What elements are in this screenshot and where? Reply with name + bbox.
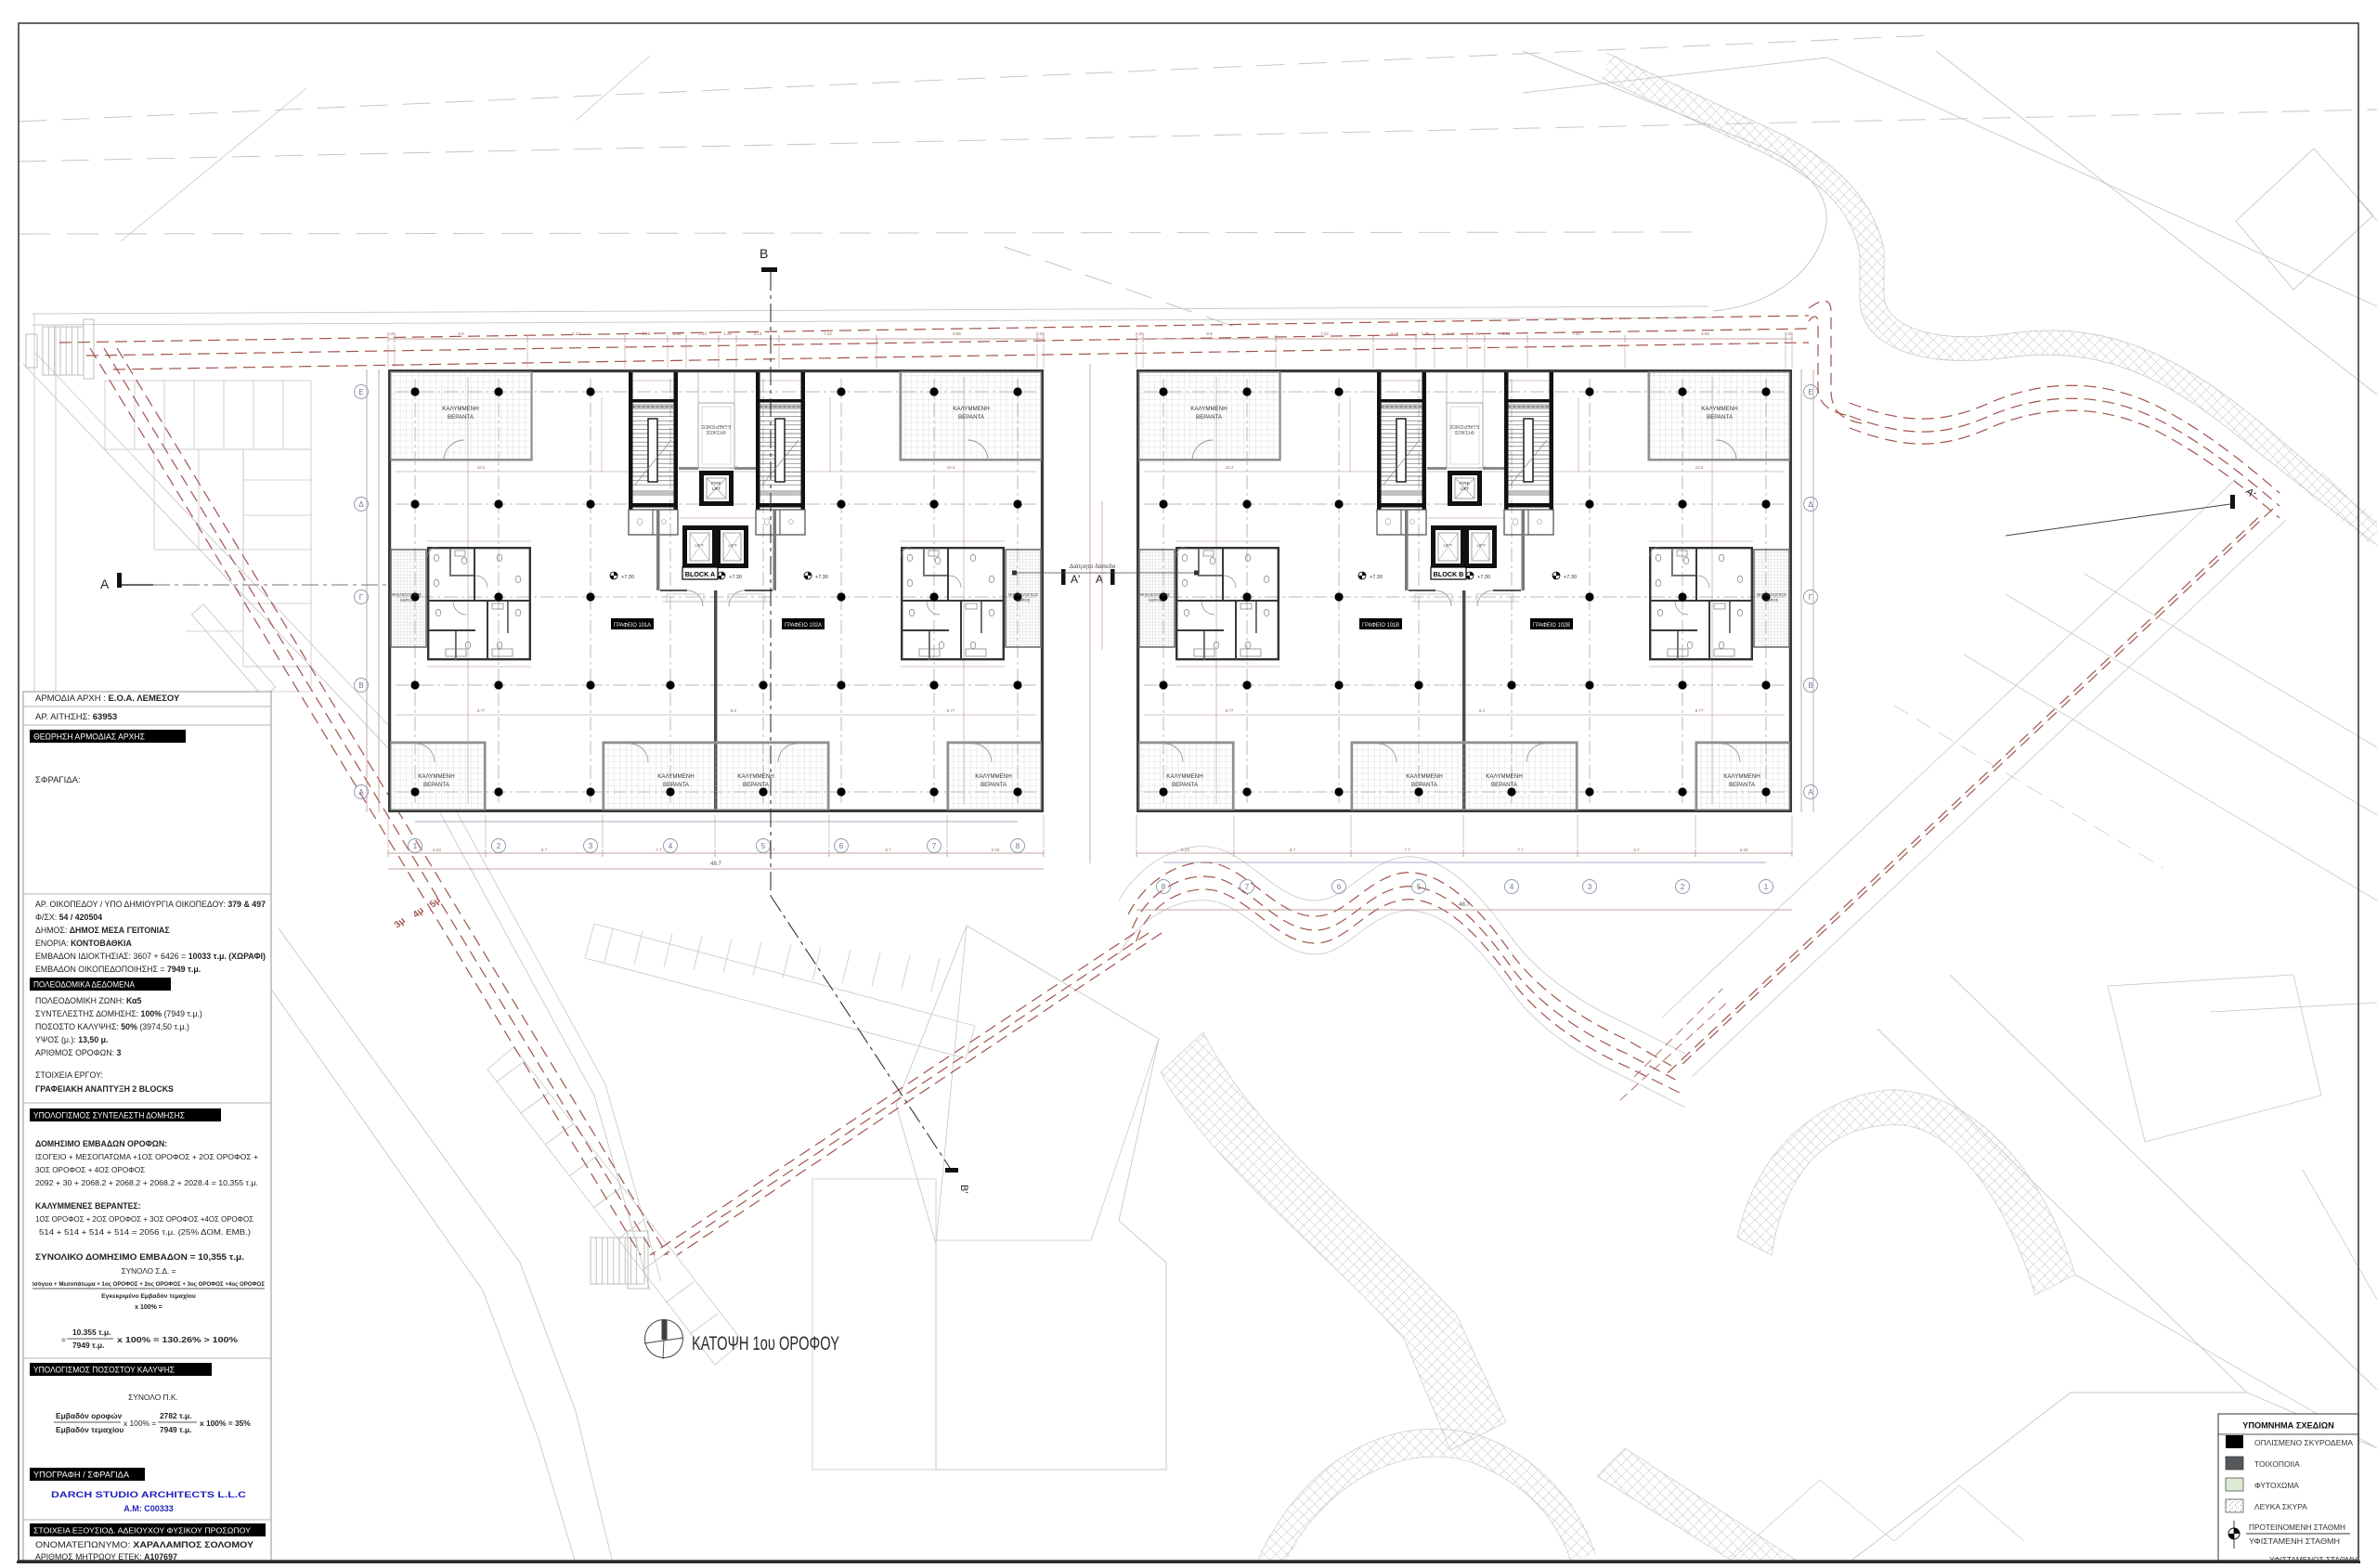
svg-text:0.25: 0.25: [387, 331, 396, 336]
svg-text:+7.30: +7.30: [621, 575, 634, 580]
svg-text:Β: Β: [358, 681, 363, 690]
svg-text:ΥΨΟΣ (μ.): 13,50 μ.: ΥΨΟΣ (μ.): 13,50 μ.: [35, 1035, 109, 1044]
svg-text:1: 1: [413, 842, 418, 850]
svg-text:ΕΝΟΡΙΑ: ΚΟΝΤΟΒΑΘΚΙΑ: ΕΝΟΡΙΑ: ΚΟΝΤΟΒΑΘΚΙΑ: [35, 939, 132, 948]
svg-text:ΣΥΝΟΛΟ Σ.Δ. =: ΣΥΝΟΛΟ Σ.Δ. =: [122, 1267, 176, 1276]
svg-text:3ΟΣ ΟΡΟΦΟΣ + 4ΟΣ ΟΡΟΦΟΣ: 3ΟΣ ΟΡΟΦΟΣ + 4ΟΣ ΟΡΟΦΟΣ: [35, 1166, 145, 1174]
svg-text:A: A: [100, 577, 110, 591]
svg-text:3.18: 3.18: [1391, 331, 1399, 336]
svg-text:Α: Α: [1808, 788, 1813, 797]
svg-text:2: 2: [1681, 883, 1685, 891]
svg-text:3: 3: [589, 842, 593, 850]
svg-text:ΒΕΡΑΝΤΑ: ΒΕΡΑΝΤΑ: [1729, 782, 1756, 788]
svg-text:LIFT: LIFT: [695, 543, 703, 548]
svg-text:x 100% = 130.26% > 100%: x 100% = 130.26% > 100%: [117, 1335, 239, 1344]
svg-text:ΜΗΧΑΝΟΛΟΓΙΚΟΣ: ΜΗΧΑΝΟΛΟΓΙΚΟΣ: [1140, 592, 1170, 597]
svg-text:Γ: Γ: [1809, 593, 1813, 602]
svg-text:Α: Α: [358, 788, 364, 797]
svg-text:ΜΗΧΑΝΟΛΟΓΙΚΟΣ: ΜΗΧΑΝΟΛΟΓΙΚΟΣ: [1757, 592, 1786, 597]
svg-text:Φ/ΣΧ: 54 / 420504: Φ/ΣΧ: 54 / 420504: [35, 913, 102, 922]
svg-text:ΥΠΟΛΟΓΙΣΜΟΣ ΠΟΣΟΣΤΟΥ ΚΑΛΥΨΗΣ: ΥΠΟΛΟΓΙΣΜΟΣ ΠΟΣΟΣΤΟΥ ΚΑΛΥΨΗΣ: [33, 1366, 175, 1375]
svg-text:ΚΑΛΥΜΜΕΝΗ: ΚΑΛΥΜΜΕΝΗ: [1701, 406, 1737, 412]
svg-text:3.18: 3.18: [643, 331, 651, 336]
svg-text:ΒΕΡΑΝΤΑ: ΒΕΡΑΝΤΑ: [1196, 414, 1223, 421]
svg-text:2782 τ.μ.: 2782 τ.μ.: [160, 1411, 191, 1420]
svg-text:514 + 514 + 514 + 514 = 2056: 514 + 514 + 514 + 514 = 2056 τ.μ. (25% Δ…: [39, 1228, 251, 1237]
svg-text:ΧΩΡΟΣ: ΧΩΡΟΣ: [1149, 598, 1163, 603]
svg-text:ΒΕΡΑΝΤΑ: ΒΕΡΑΝΤΑ: [1707, 414, 1734, 421]
svg-text:ΣΤΟΙΧΕΙΑ ΕΞΟΥΣΙΟΔ. ΑΔΕΙΟΥΧΟΥ Φ: ΣΤΟΙΧΕΙΑ ΕΞΟΥΣΙΟΔ. ΑΔΕΙΟΥΧΟΥ ΦΥΣΙΚΟΥ ΠΡΟ…: [33, 1526, 251, 1536]
svg-text:6: 6: [1337, 883, 1342, 891]
svg-text:ΣΥΝΟΛΟ Π.Κ.: ΣΥΝΟΛΟ Π.Κ.: [128, 1393, 178, 1402]
svg-text:5: 5: [761, 842, 766, 850]
svg-text:4: 4: [669, 842, 673, 850]
svg-text:ΦΥΤΟΧΩΜΑ: ΦΥΤΟΧΩΜΑ: [2254, 1481, 2299, 1490]
svg-text:ΑΡ. ΑΙΤΗΣΗΣ: 63953: ΑΡ. ΑΙΤΗΣΗΣ: 63953: [35, 712, 117, 722]
svg-text:8.7: 8.7: [1633, 848, 1640, 852]
svg-text:ΕΞΑΕΡΙΣΜΟΣ: ΕΞΑΕΡΙΣΜΟΣ: [1449, 423, 1479, 429]
svg-text:7.7: 7.7: [1404, 848, 1410, 852]
svg-text:ΓΡΑΦΕΙΟ 102A: ΓΡΑΦΕΙΟ 102A: [785, 622, 823, 628]
svg-text:6.33: 6.33: [433, 848, 441, 852]
svg-text:Δ: Δ: [358, 500, 364, 509]
svg-text:ΧΩΡΟΣ: ΧΩΡΟΣ: [400, 598, 414, 603]
svg-text:ΚΑΤΟΨΗ 1ου ΟΡΟΦΟΥ: ΚΑΤΟΨΗ 1ου ΟΡΟΦΟΥ: [692, 1332, 839, 1354]
svg-text:ΚΑΛΥΜΜΕΝΕΣ ΒΕΡΑΝΤΕΣ:: ΚΑΛΥΜΜΕΝΕΣ ΒΕΡΑΝΤΕΣ:: [35, 1201, 141, 1211]
svg-text:8: 8: [1162, 883, 1166, 891]
svg-text:6.33: 6.33: [1740, 848, 1748, 852]
svg-text:ΧΩΡΟΣ: ΧΩΡΟΣ: [1017, 598, 1031, 603]
svg-text:ΣΦΡΑΓΙΔΑ:: ΣΦΡΑΓΙΔΑ:: [35, 775, 81, 785]
svg-text:1: 1: [1764, 883, 1769, 891]
svg-text:ΜΗΧΑΝΟΛΟΓΙΚΟΣ: ΜΗΧΑΝΟΛΟΓΙΚΟΣ: [392, 592, 422, 597]
svg-text:1.35: 1.35: [1472, 331, 1480, 336]
svg-text:ΒΕΡΑΝΤΑ: ΒΕΡΑΝΤΑ: [981, 782, 1007, 788]
svg-text:ΥΠΟΜΝΗΜΑ ΣΧΕΔΙΩΝ: ΥΠΟΜΝΗΜΑ ΣΧΕΔΙΩΝ: [2242, 1421, 2334, 1431]
svg-text:LIFT: LIFT: [1443, 543, 1451, 548]
svg-text:6.33: 6.33: [1181, 848, 1189, 852]
svg-text:7.7: 7.7: [1517, 848, 1524, 852]
svg-text:ΚΑΛΥΜΜΕΝΗ: ΚΑΛΥΜΜΕΝΗ: [953, 406, 989, 412]
svg-text:4: 4: [1510, 883, 1514, 891]
svg-text:Ε: Ε: [358, 388, 363, 396]
svg-text:Εμβαδόν τεμαχίου: Εμβαδόν τεμαχίου: [56, 1425, 123, 1434]
svg-text:ΥΠΟΓΡΑΦΗ / ΣΦΡΑΓΙΔΑ: ΥΠΟΓΡΑΦΗ / ΣΦΡΑΓΙΔΑ: [33, 1471, 129, 1480]
svg-text:1ΟΣ ΟΡΟΦΟΣ + 2ΟΣ ΟΡΟΦΟΣ + 3ΟΣ: 1ΟΣ ΟΡΟΦΟΣ + 2ΟΣ ΟΡΟΦΟΣ + 3ΟΣ ΟΡΟΦΟΣ +4Ο…: [35, 1215, 253, 1224]
svg-text:1.35: 1.35: [673, 331, 682, 336]
svg-text:48.7: 48.7: [710, 862, 721, 867]
svg-text:48.7: 48.7: [1459, 902, 1470, 908]
svg-text:ΒΕΡΑΝΤΑ: ΒΕΡΑΝΤΑ: [663, 782, 690, 788]
svg-text:Δ: Δ: [1808, 500, 1813, 509]
svg-text:ΓΡΑΦΕΙΟ 101B: ΓΡΑΦΕΙΟ 101B: [1362, 622, 1399, 628]
svg-text:B: B: [760, 246, 768, 261]
svg-text:ΚΑΛΥΜΜΕΝΗ: ΚΑΛΥΜΜΕΝΗ: [1723, 773, 1760, 780]
svg-text:ΘΕΩΡΗΣΗ ΑΡΜΟΔΙΑΣ ΑΡΧΗΣ: ΘΕΩΡΗΣΗ ΑΡΜΟΔΙΑΣ ΑΡΧΗΣ: [33, 732, 146, 742]
svg-text:ΥΦΙΣΤΑΜΕΝΗ ΣΤΑΘΜΗ: ΥΦΙΣΤΑΜΕΝΗ ΣΤΑΘΜΗ: [2249, 1536, 2340, 1546]
svg-text:+7.30: +7.30: [1370, 575, 1383, 580]
svg-text:ΣΤΟΙΧΕΙΑ ΕΡΓΟΥ:: ΣΤΟΙΧΕΙΑ ΕΡΓΟΥ:: [35, 1070, 103, 1080]
svg-text:ΠΟΛΕΟΔΟΜΙΚΑ ΔΕΔΟΜΕΝΑ: ΠΟΛΕΟΔΟΜΙΚΑ ΔΕΔΟΜΕΝΑ: [33, 980, 135, 990]
svg-text:Εμβαδόν οροφών: Εμβαδόν οροφών: [56, 1411, 123, 1420]
svg-text:ΓΡΑΦΕΙΑΚΗ ΑΝΑΠΤΥΞΗ 2 BLOCKS: ΓΡΑΦΕΙΑΚΗ ΑΝΑΠΤΥΞΗ 2 BLOCKS: [35, 1084, 174, 1094]
svg-text:B': B': [958, 1185, 969, 1193]
svg-text:ΚΑΛΥΜΜΕΝΗ: ΚΑΛΥΜΜΕΝΗ: [442, 406, 478, 412]
svg-text:ΠΡΟΤΕΙΝΟΜΕΝΗ ΣΤΑΘΜΗ: ΠΡΟΤΕΙΝΟΜΕΝΗ ΣΤΑΘΜΗ: [2249, 1523, 2345, 1532]
svg-text:ΒΕΡΑΝΤΑ: ΒΕΡΑΝΤΑ: [1172, 782, 1199, 788]
svg-text:3.13: 3.13: [754, 331, 762, 336]
svg-text:8.7: 8.7: [1290, 848, 1296, 852]
svg-text:ΓΡΑΦΕΙΟ 102B: ΓΡΑΦΕΙΟ 102B: [1533, 622, 1570, 628]
svg-text:ΑΡΜΟΔΙΑ ΑΡΧΗ : Ε.Ο.Α. ΛΕΜΕΣΟΥ: ΑΡΜΟΔΙΑ ΑΡΧΗ : Ε.Ο.Α. ΛΕΜΕΣΟΥ: [35, 693, 180, 704]
svg-text:3.13: 3.13: [1502, 331, 1511, 336]
svg-text:+7.30: +7.30: [1564, 575, 1577, 580]
svg-text:x 100% =: x 100% =: [135, 1304, 162, 1311]
svg-text:FIRE: FIRE: [711, 481, 721, 486]
svg-text:ΚΑΛΥΜΜΕΝΗ: ΚΑΛΥΜΜΕΝΗ: [657, 773, 694, 780]
svg-text:ΑΡΙΘΜΟΣ ΟΡΟΦΩΝ: 3: ΑΡΙΘΜΟΣ ΟΡΟΦΩΝ: 3: [35, 1048, 121, 1057]
svg-text:ΟΠΛΙΣΜΕΝΟ ΣΚΥΡΟΔΕΜΑ: ΟΠΛΙΣΜΕΝΟ ΣΚΥΡΟΔΕΜΑ: [2254, 1438, 2353, 1447]
svg-text:7.22: 7.22: [1572, 331, 1580, 336]
svg-text:ΜΗΧΑΝΟΛΟΓΙΚΟΣ: ΜΗΧΑΝΟΛΟΓΙΚΟΣ: [1008, 592, 1038, 597]
svg-text:BLOCK A: BLOCK A: [685, 570, 715, 578]
svg-text:ΚΑΛΥΜΜΕΝΗ: ΚΑΛΥΜΜΕΝΗ: [1166, 773, 1202, 780]
svg-text:ΒΕΡΑΝΤΑ: ΒΕΡΑΝΤΑ: [1411, 782, 1438, 788]
svg-text:A.M: C00333: A.M: C00333: [123, 1504, 174, 1513]
svg-text:ΒΕΡΑΝΤΑ: ΒΕΡΑΝΤΑ: [448, 414, 474, 421]
svg-text:3: 3: [1588, 883, 1592, 891]
svg-text:ΛΕΥΚΑ ΣΚΥΡΑ: ΛΕΥΚΑ ΣΚΥΡΑ: [2254, 1502, 2307, 1511]
svg-text:ΙΣΟΓΕΙΟ + ΜΕΣΟΠΑΤΩΜΑ +1ΟΣ ΟΡΟΦ: ΙΣΟΓΕΙΟ + ΜΕΣΟΠΑΤΩΜΑ +1ΟΣ ΟΡΟΦΟΣ + 2ΟΣ Ο…: [35, 1153, 258, 1161]
svg-text:ΕΜΒΑΔΟΝ ΙΔΙΟΚΤΗΣΙΑΣ: 3607 + 64: ΕΜΒΑΔΟΝ ΙΔΙΟΚΤΗΣΙΑΣ: 3607 + 6426 = 10033…: [35, 952, 266, 961]
svg-text:ΒΕΡΑΝΤΑ: ΒΕΡΑΝΤΑ: [743, 782, 770, 788]
svg-text:ΣΥΝΟΛΙΚΟ ΔΟΜΗΣΙΜΟ ΕΜΒΑΔΟΝ = 10: ΣΥΝΟΛΙΚΟ ΔΟΜΗΣΙΜΟ ΕΜΒΑΔΟΝ = 10,355 τ.μ.: [35, 1252, 244, 1262]
svg-text:ΓΡΑΦΕΙΟ 101A: ΓΡΑΦΕΙΟ 101A: [614, 622, 652, 628]
svg-text:9.85: 9.85: [1701, 331, 1709, 336]
svg-text:ΚΑΛΥΜΜΕΝΗ: ΚΑΛΥΜΜΕΝΗ: [1406, 773, 1442, 780]
svg-text:A': A': [1071, 573, 1080, 586]
svg-text:ΣΥΝΤΕΛΕΣΤΗΣ ΔΟΜΗΣΗΣ: 100% (794: ΣΥΝΤΕΛΕΣΤΗΣ ΔΟΜΗΣΗΣ: 100% (7949 τ.μ.): [35, 1009, 202, 1018]
svg-text:0.25: 0.25: [1136, 331, 1144, 336]
svg-text:ΚΑΛΥΜΜΕΝΗ: ΚΑΛΥΜΜΕΝΗ: [418, 773, 454, 780]
svg-text:9.85: 9.85: [953, 331, 961, 336]
svg-text:7.7: 7.7: [656, 848, 662, 852]
svg-text:LIFT: LIFT: [712, 486, 721, 491]
svg-text:ΚΑΛΥΜΜΕΝΗ: ΚΑΛΥΜΜΕΝΗ: [1486, 773, 1522, 780]
svg-text:ΔΟΜΗΣΙΜΟ ΕΜΒΑΔΩΝ ΟΡΟΦΩΝ:: ΔΟΜΗΣΙΜΟ ΕΜΒΑΔΩΝ ΟΡΟΦΩΝ:: [35, 1139, 167, 1148]
svg-text:6.33: 6.33: [992, 848, 1000, 852]
svg-text:8: 8: [1016, 842, 1020, 850]
svg-text:+7.30: +7.30: [815, 575, 828, 580]
svg-text:7949 τ.μ.: 7949 τ.μ.: [72, 1341, 104, 1350]
svg-text:2092 + 30 + 2068.2 + 2068.2 +: 2092 + 30 + 2068.2 + 2068.2 + 2068.2 + 2…: [35, 1179, 258, 1187]
svg-text:5: 5: [1417, 883, 1422, 891]
svg-text:7: 7: [932, 842, 937, 850]
svg-text:Γ: Γ: [359, 593, 364, 602]
svg-text:Εγκεκριμένο Εμβαδόν τεμαχίου: Εγκεκριμένο Εμβαδόν τεμαχίου: [101, 1293, 196, 1300]
svg-text:ΠΟΣΟΣΤΟ ΚΑΛΥΨΗΣ: 50% (3974,50: ΠΟΣΟΣΤΟ ΚΑΛΥΨΗΣ: 50% (3974,50 τ.μ.): [35, 1022, 189, 1031]
svg-text:ΚΑΛΥΜΜΕΝΗ: ΚΑΛΥΜΜΕΝΗ: [975, 773, 1011, 780]
svg-text:8.7: 8.7: [885, 848, 891, 852]
svg-text:9.9: 9.9: [458, 331, 464, 336]
svg-text:7.22: 7.22: [1320, 331, 1329, 336]
svg-text:ΠΟΛΕΟΔΟΜΙΚΗ ΖΩΝΗ: Κα5: ΠΟΛΕΟΔΟΜΙΚΗ ΖΩΝΗ: Κα5: [35, 996, 142, 1005]
svg-text:Ε: Ε: [1808, 388, 1812, 396]
svg-text:BLOCK B: BLOCK B: [1434, 570, 1464, 578]
svg-text:x 100% =: x 100% =: [123, 1419, 156, 1428]
svg-text:7949 τ.μ.: 7949 τ.μ.: [160, 1425, 191, 1434]
svg-text:ΑΡ. ΟΙΚΟΠΕΔΟΥ / ΥΠΟ ΔΗΜΙΟΥΡΓΙΑ: ΑΡ. ΟΙΚΟΠΕΔΟΥ / ΥΠΟ ΔΗΜΙΟΥΡΓΙΑ ΟΙΚΟΠΕΔΟΥ…: [35, 900, 266, 909]
svg-text:+7.30: +7.30: [729, 575, 742, 580]
svg-text:7: 7: [1245, 883, 1250, 891]
svg-text:ΔΗΜΟΣ: ΔΗΜΟΣ ΜΕΣΑ ΓΕΙΤΟΝΙΑΣ: ΔΗΜΟΣ: ΔΗΜΟΣ ΜΕΣΑ ΓΕΙΤΟΝΙΑΣ: [35, 926, 170, 935]
svg-text:9.9: 9.9: [1206, 331, 1213, 336]
svg-text:2.43: 2.43: [1447, 331, 1455, 336]
svg-text:DARCH STUDIO ARCHITECTS L.L.C: DARCH STUDIO ARCHITECTS L.L.C: [51, 1490, 247, 1499]
svg-text:8.7: 8.7: [541, 848, 548, 852]
svg-text:ΒΕΡΑΝΤΑ: ΒΕΡΑΝΤΑ: [423, 782, 450, 788]
svg-text:1.35: 1.35: [723, 331, 732, 336]
svg-text:LIFT: LIFT: [1461, 486, 1470, 491]
svg-text:0.25: 0.25: [1036, 331, 1045, 336]
svg-text:0.25: 0.25: [1785, 331, 1793, 336]
svg-text:LIFT: LIFT: [728, 543, 736, 548]
svg-text:10.355 τ.μ.: 10.355 τ.μ.: [72, 1328, 110, 1337]
svg-text:LIFT: LIFT: [1476, 543, 1485, 548]
svg-text:Ισόγειο + Μεσοπάτωμα + 1ος ΟΡΟ: Ισόγειο + Μεσοπάτωμα + 1ος ΟΡΟΦΟΣ + 2ος …: [32, 1281, 265, 1288]
svg-text:+7.30: +7.30: [1477, 575, 1490, 580]
svg-text:2: 2: [497, 842, 501, 850]
svg-text:7.22: 7.22: [572, 331, 580, 336]
svg-text:Διάτρητο δάπεδο: Διάτρητο δάπεδο: [1070, 563, 1116, 570]
svg-text:ΟΝΟΜΑΤΕΠΩΝΥΜΟ: ΧΑΡΑΛΑΜΠΟΣ ΣΟΛΟ: ΟΝΟΜΑΤΕΠΩΝΥΜΟ: ΧΑΡΑΛΑΜΠΟΣ ΣΟΛΟΜΟΥ: [35, 1540, 253, 1549]
svg-text:Β: Β: [1808, 681, 1812, 690]
svg-text:FIRE: FIRE: [1460, 481, 1469, 486]
svg-text:ΚΑΛΥΜΜΕΝΗ: ΚΑΛΥΜΜΕΝΗ: [1190, 406, 1227, 412]
svg-text:ΚΑΛΥΜΜΕΝΗ: ΚΑΛΥΜΜΕΝΗ: [737, 773, 773, 780]
svg-text:ΤΟΙΧΟΠΟΙΙΑ: ΤΟΙΧΟΠΟΙΙΑ: [2254, 1459, 2300, 1469]
svg-text:ΒΕΡΑΝΤΑ: ΒΕΡΑΝΤΑ: [958, 414, 985, 421]
svg-text:ΕΞΑΕΡΙΣΜΟΣ: ΕΞΑΕΡΙΣΜΟΣ: [701, 423, 731, 429]
svg-text:2.43: 2.43: [698, 331, 707, 336]
svg-text:ΥΠΟΛΟΓΙΣΜΟΣ ΣΥΝΤΕΛΕΣΤΗ ΔΟΜΗΣΗΣ: ΥΠΟΛΟΓΙΣΜΟΣ ΣΥΝΤΕΛΕΣΤΗ ΔΟΜΗΣΗΣ: [33, 1111, 186, 1121]
svg-text:1.35: 1.35: [1422, 331, 1430, 336]
svg-text:x 100% = 35%: x 100% = 35%: [200, 1419, 251, 1428]
svg-text:7.22: 7.22: [824, 331, 832, 336]
svg-text:6: 6: [839, 842, 844, 850]
svg-text:ΒΕΡΑΝΤΑ: ΒΕΡΑΝΤΑ: [1491, 782, 1518, 788]
svg-text:ΧΩΡΟΣ: ΧΩΡΟΣ: [1765, 598, 1779, 603]
svg-text:=: =: [61, 1335, 66, 1344]
svg-text:ΕΜΒΑΔΟΝ ΟΙΚΟΠΕΔΟΠΟΙΗΣΗΣ = 7949: ΕΜΒΑΔΟΝ ΟΙΚΟΠΕΔΟΠΟΙΗΣΗΣ = 7949 τ.μ.: [35, 965, 201, 974]
